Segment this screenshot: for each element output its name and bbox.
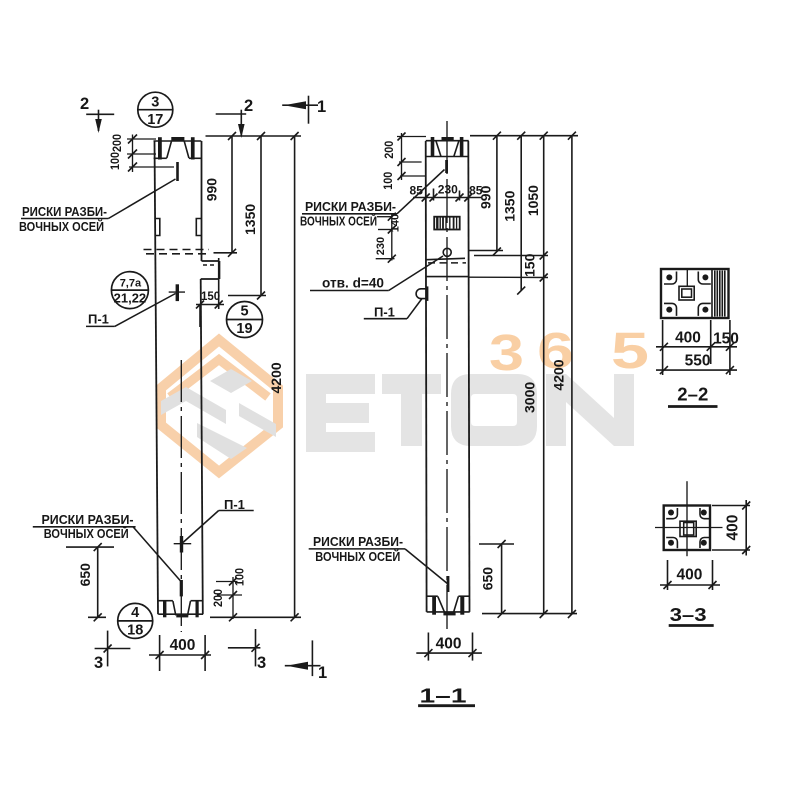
svg-text:21,22: 21,22 xyxy=(114,291,147,306)
svg-text:1350: 1350 xyxy=(502,190,518,221)
svg-text:3: 3 xyxy=(257,654,266,672)
svg-text:ВОЧНЫХ ОСЕЙ: ВОЧНЫХ ОСЕЙ xyxy=(315,549,400,564)
svg-text:17: 17 xyxy=(147,112,163,128)
svg-text:19: 19 xyxy=(236,321,252,337)
svg-text:990: 990 xyxy=(477,185,493,209)
svg-text:990: 990 xyxy=(204,178,220,202)
svg-text:18: 18 xyxy=(127,623,143,639)
svg-text:200: 200 xyxy=(110,134,124,152)
svg-text:РИСКИ РАЗБИ-: РИСКИ РАЗБИ- xyxy=(313,534,403,549)
svg-text:230: 230 xyxy=(438,183,458,197)
svg-text:2: 2 xyxy=(244,97,253,115)
svg-text:3–3: 3–3 xyxy=(670,605,707,625)
svg-text:400: 400 xyxy=(675,330,701,347)
svg-text:3: 3 xyxy=(94,654,103,672)
svg-text:2: 2 xyxy=(80,95,89,113)
svg-text:230: 230 xyxy=(375,237,387,255)
svg-text:550: 550 xyxy=(685,352,711,369)
svg-text:1–1: 1–1 xyxy=(420,686,467,708)
svg-text:100: 100 xyxy=(108,152,122,170)
svg-text:650: 650 xyxy=(480,567,496,591)
svg-text:4200: 4200 xyxy=(268,362,284,393)
svg-text:4: 4 xyxy=(131,605,139,621)
svg-text:150: 150 xyxy=(713,331,739,348)
svg-text:РИСКИ РАЗБИ-: РИСКИ РАЗБИ- xyxy=(305,199,396,214)
svg-text:3000: 3000 xyxy=(521,382,537,413)
svg-text:ВОЧНЫХ ОСЕЙ: ВОЧНЫХ ОСЕЙ xyxy=(44,526,129,541)
svg-text:П-1: П-1 xyxy=(88,312,109,327)
svg-text:ВОЧНЫХ ОСЕЙ: ВОЧНЫХ ОСЕЙ xyxy=(19,219,104,234)
svg-text:3: 3 xyxy=(151,95,159,111)
svg-text:100: 100 xyxy=(381,171,395,189)
svg-text:ВОЧНЫХ ОСЕЙ: ВОЧНЫХ ОСЕЙ xyxy=(300,214,377,229)
svg-text:150: 150 xyxy=(521,253,537,277)
svg-text:5: 5 xyxy=(240,304,248,320)
svg-text:200: 200 xyxy=(211,589,225,607)
svg-text:3: 3 xyxy=(489,324,524,381)
svg-text:150: 150 xyxy=(201,291,220,303)
svg-text:140: 140 xyxy=(390,214,402,232)
svg-text:5: 5 xyxy=(611,322,649,379)
svg-text:1: 1 xyxy=(317,98,326,116)
svg-text:100: 100 xyxy=(233,568,247,586)
svg-text:1050: 1050 xyxy=(525,185,541,216)
svg-text:650: 650 xyxy=(77,563,93,587)
svg-text:1350: 1350 xyxy=(242,204,258,235)
svg-text:П-1: П-1 xyxy=(374,305,395,320)
svg-text:РИСКИ РАЗБИ-: РИСКИ РАЗБИ- xyxy=(22,204,107,219)
svg-text:7,7а: 7,7а xyxy=(120,278,142,290)
svg-text:4200: 4200 xyxy=(550,359,566,390)
svg-text:400: 400 xyxy=(170,637,196,654)
svg-text:400: 400 xyxy=(436,636,462,653)
svg-text:200: 200 xyxy=(382,141,396,159)
svg-text:1: 1 xyxy=(318,664,327,682)
svg-text:отв. d=40: отв. d=40 xyxy=(322,275,384,291)
svg-text:РИСКИ РАЗБИ-: РИСКИ РАЗБИ- xyxy=(42,512,134,527)
svg-text:400: 400 xyxy=(725,515,742,541)
svg-text:2–2: 2–2 xyxy=(677,385,708,405)
svg-text:400: 400 xyxy=(676,567,702,584)
